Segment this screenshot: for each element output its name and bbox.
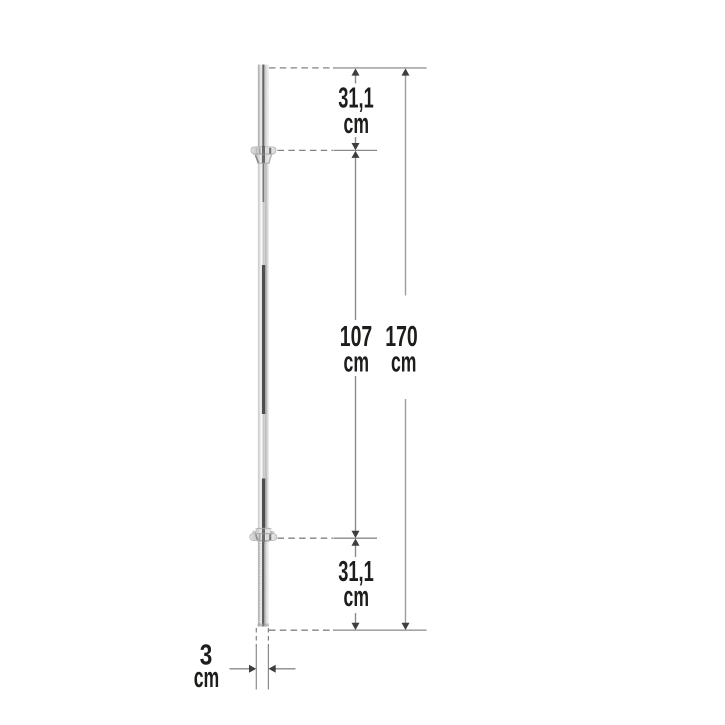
svg-text:cm: cm [344, 581, 370, 613]
svg-text:cm: cm [344, 108, 370, 140]
svg-text:cm: cm [344, 346, 370, 378]
svg-text:cm: cm [391, 346, 417, 378]
svg-text:cm: cm [194, 662, 220, 694]
